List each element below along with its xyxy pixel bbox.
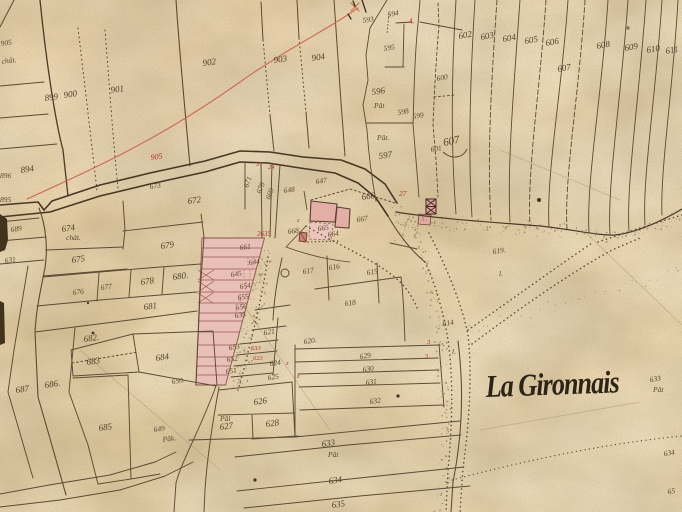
svg-text:635: 635 xyxy=(331,498,346,510)
svg-text:687: 687 xyxy=(15,383,30,395)
svg-text:623: 623 xyxy=(253,355,264,362)
svg-text:650.: 650. xyxy=(171,375,185,386)
svg-text:633: 633 xyxy=(321,437,336,449)
svg-text:634: 634 xyxy=(663,447,676,458)
svg-text:903: 903 xyxy=(273,53,288,65)
svg-text:l.: l. xyxy=(499,269,503,278)
svg-text:614: 614 xyxy=(442,317,455,328)
svg-text:651: 651 xyxy=(225,366,237,376)
svg-text:899: 899 xyxy=(44,91,59,103)
svg-text:685: 685 xyxy=(98,421,113,433)
svg-text:675: 675 xyxy=(71,253,86,265)
svg-text:Pât.: Pât. xyxy=(376,133,389,142)
svg-text:27: 27 xyxy=(399,189,407,198)
svg-text:629: 629 xyxy=(359,350,372,361)
svg-text:894: 894 xyxy=(20,163,35,175)
svg-text:616: 616 xyxy=(328,261,341,272)
svg-text:644: 644 xyxy=(248,256,261,267)
svg-text:619.: 619. xyxy=(492,245,506,256)
svg-text:668: 668 xyxy=(287,225,300,236)
svg-text:Pât: Pât xyxy=(652,385,664,394)
svg-text:896: 896 xyxy=(0,171,12,180)
svg-text:621: 621 xyxy=(263,327,275,337)
svg-text:24: 24 xyxy=(268,164,275,171)
svg-text:645: 645 xyxy=(230,268,243,279)
svg-text:681: 681 xyxy=(143,300,158,312)
svg-text:601: 601 xyxy=(430,143,443,154)
svg-text:902: 902 xyxy=(202,56,217,68)
svg-text:905: 905 xyxy=(0,37,13,48)
svg-text:633: 633 xyxy=(251,345,262,352)
svg-text:615: 615 xyxy=(366,266,379,277)
svg-text:597: 597 xyxy=(378,149,393,161)
svg-text:648: 648 xyxy=(283,184,296,195)
svg-text:664: 664 xyxy=(327,228,340,239)
svg-text:z: z xyxy=(285,360,289,367)
svg-text:Pât: Pât xyxy=(327,450,339,459)
svg-text:618: 618 xyxy=(344,297,357,308)
svg-text:596: 596 xyxy=(371,85,386,97)
svg-text:635: 635 xyxy=(234,309,247,320)
svg-text:901: 901 xyxy=(110,83,125,95)
svg-text:37: 37 xyxy=(255,161,263,168)
svg-text:652: 652 xyxy=(226,353,239,364)
svg-text:631: 631 xyxy=(4,255,16,265)
svg-text:2635: 2635 xyxy=(257,230,272,238)
svg-text:672: 672 xyxy=(187,194,202,206)
svg-text:634: 634 xyxy=(328,474,343,486)
svg-text:624: 624 xyxy=(269,357,282,368)
svg-text:l.: l. xyxy=(452,347,456,356)
svg-text:630: 630 xyxy=(362,363,375,374)
svg-text:684: 684 xyxy=(155,351,170,363)
svg-text:653: 653 xyxy=(228,341,241,352)
svg-text:673: 673 xyxy=(149,180,162,191)
svg-text:666: 666 xyxy=(361,190,376,202)
svg-text:chât.: chât. xyxy=(66,233,81,242)
svg-text:628: 628 xyxy=(265,417,280,429)
svg-text:617: 617 xyxy=(302,265,315,276)
svg-text:627: 627 xyxy=(219,420,234,432)
svg-text:631: 631 xyxy=(365,377,377,387)
svg-text:620.: 620. xyxy=(303,335,317,346)
svg-text:z: z xyxy=(296,217,300,224)
svg-text:905: 905 xyxy=(150,151,163,162)
svg-text:633: 633 xyxy=(649,373,662,384)
svg-text:683: 683 xyxy=(86,355,101,367)
svg-text:632: 632 xyxy=(369,395,382,406)
svg-text:Pât: Pât xyxy=(373,101,385,110)
svg-text:647: 647 xyxy=(315,175,328,186)
svg-text:z: z xyxy=(296,373,300,380)
svg-text:649: 649 xyxy=(153,423,166,434)
svg-text:661: 661 xyxy=(239,242,251,252)
svg-text:La Gironnais: La Gironnais xyxy=(484,365,620,405)
svg-text:625: 625 xyxy=(267,371,280,382)
svg-text:677: 677 xyxy=(100,281,113,292)
svg-text:900: 900 xyxy=(63,88,78,100)
svg-text:655: 655 xyxy=(237,291,250,302)
svg-text:689: 689 xyxy=(10,223,23,234)
svg-text:667: 667 xyxy=(356,213,369,224)
svg-text:895: 895 xyxy=(0,195,12,204)
svg-text:904: 904 xyxy=(311,51,326,63)
svg-text:678: 678 xyxy=(140,275,155,287)
svg-text:654: 654 xyxy=(239,280,252,291)
svg-text:4.: 4. xyxy=(408,16,415,26)
svg-text:65: 65 xyxy=(667,486,676,496)
svg-text:679: 679 xyxy=(160,239,175,251)
svg-text:626: 626 xyxy=(253,395,268,407)
svg-text:676: 676 xyxy=(72,286,85,297)
